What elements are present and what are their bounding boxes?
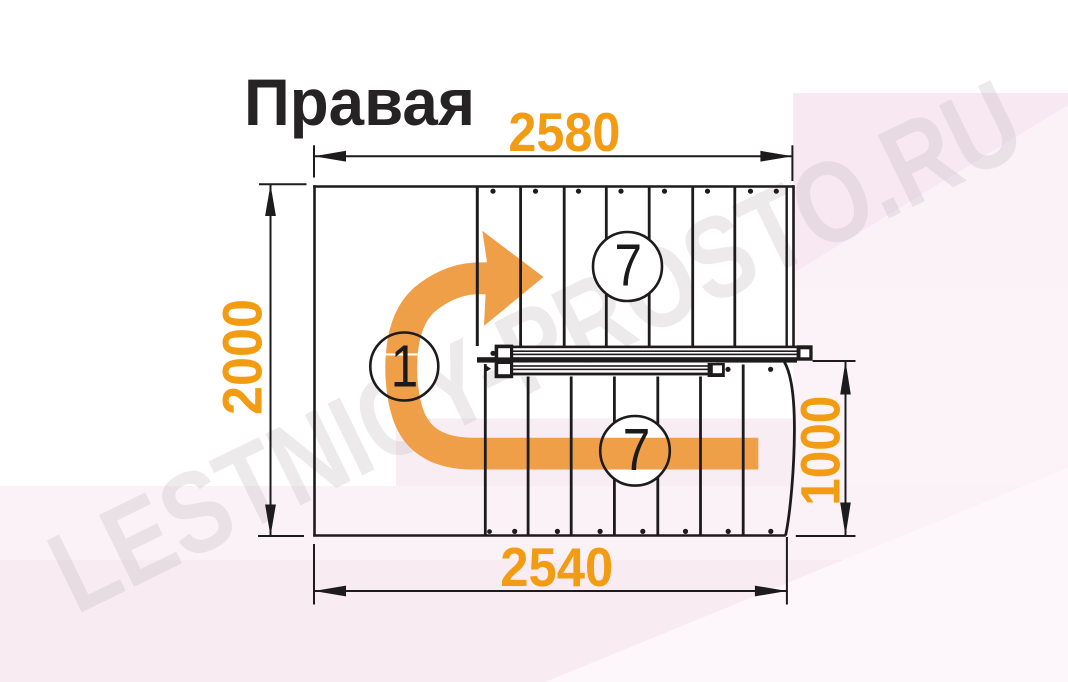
svg-text:Правая: Правая xyxy=(244,65,475,139)
svg-text:1000: 1000 xyxy=(789,396,852,506)
svg-text:1: 1 xyxy=(391,334,419,400)
svg-text:2000: 2000 xyxy=(211,299,274,415)
svg-text:2540: 2540 xyxy=(500,536,613,598)
svg-text:2580: 2580 xyxy=(508,101,620,163)
svg-text:7: 7 xyxy=(623,417,651,483)
svg-text:7: 7 xyxy=(614,233,642,299)
